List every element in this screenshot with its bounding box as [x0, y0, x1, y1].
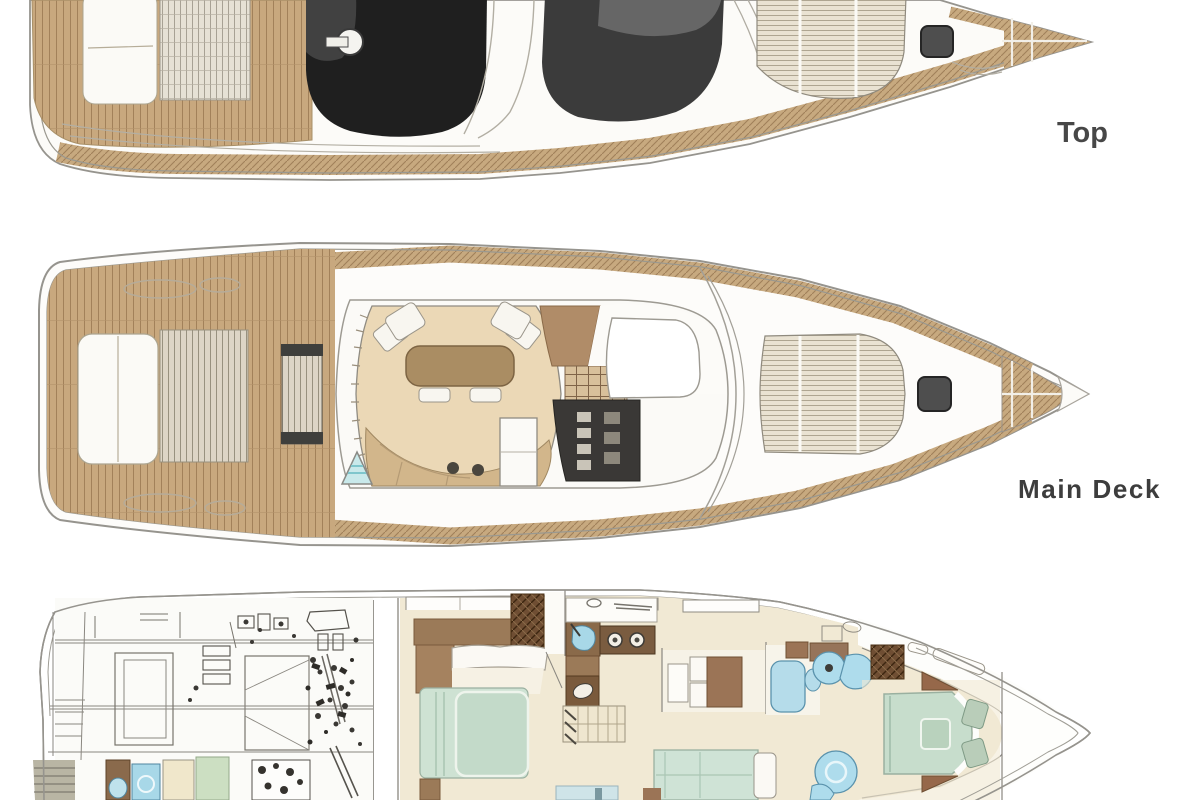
- svg-text:Main Deck: Main Deck: [1018, 474, 1161, 504]
- svg-text:Top: Top: [1057, 117, 1108, 149]
